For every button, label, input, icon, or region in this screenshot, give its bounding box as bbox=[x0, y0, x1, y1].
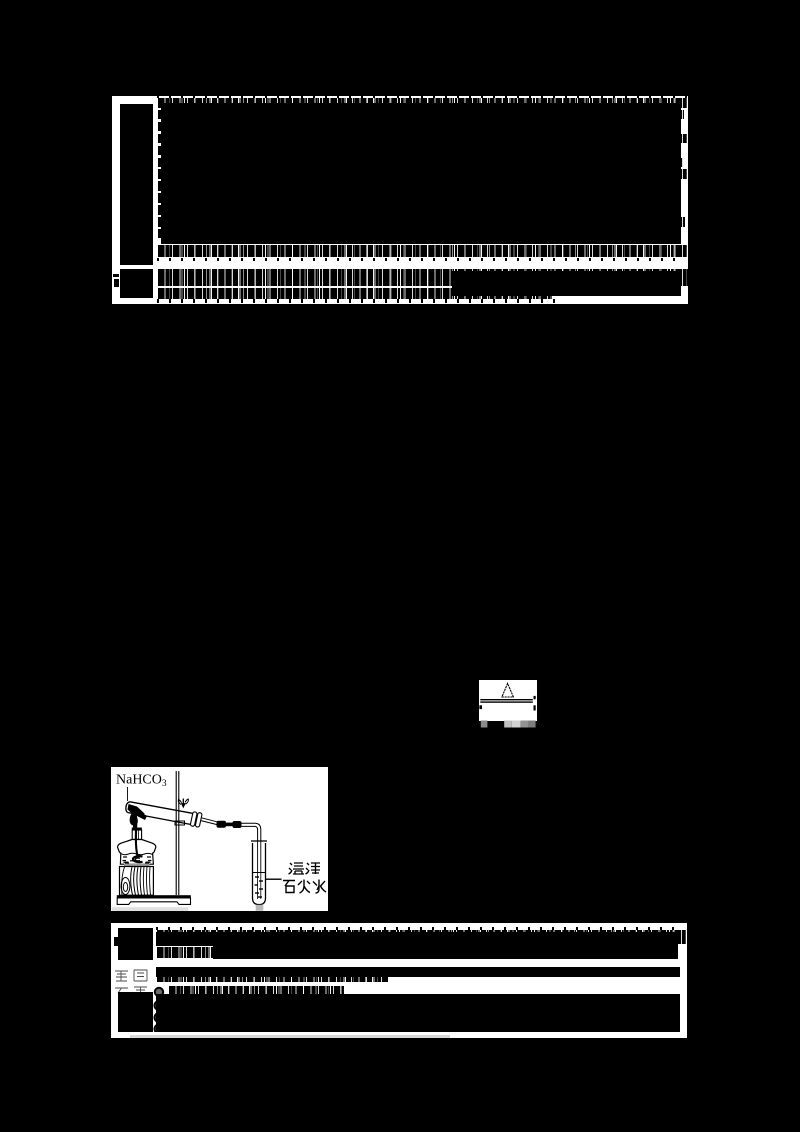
svg-text:NaHCO3: NaHCO3 bbox=[116, 773, 167, 790]
